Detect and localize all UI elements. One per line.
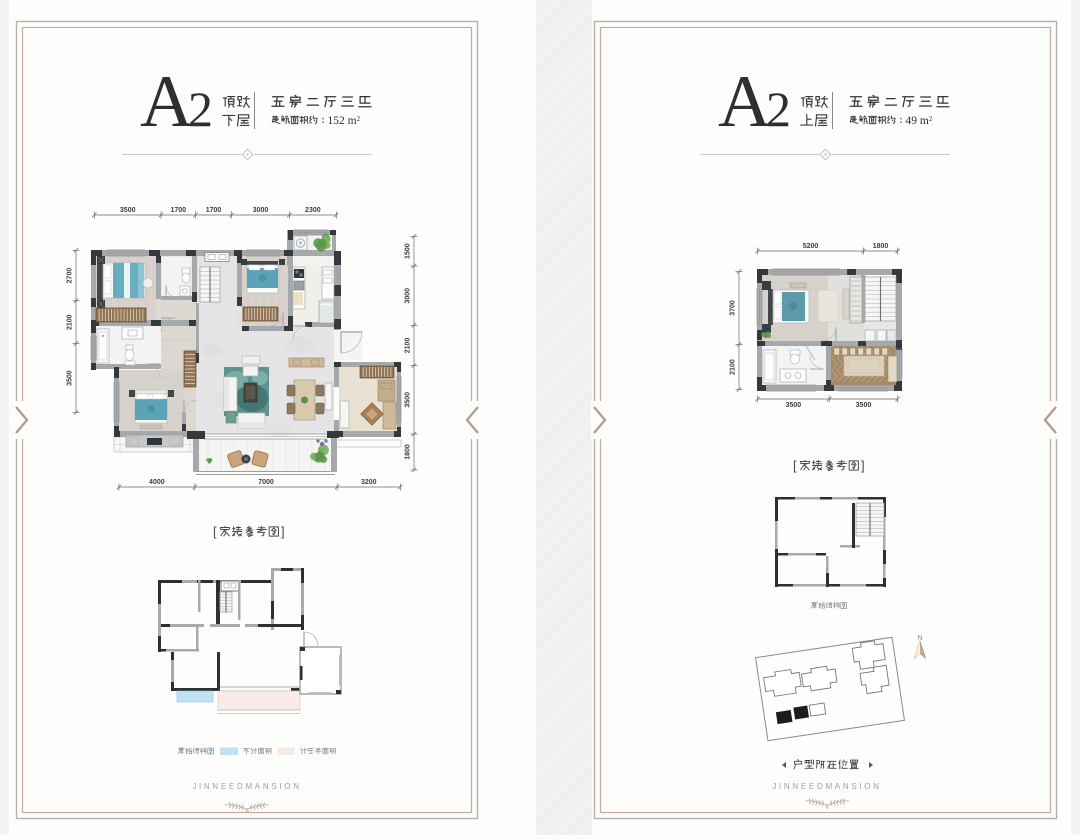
svg-text:2700: 2700 <box>67 268 74 284</box>
svg-text:JINNEEDMANSION: JINNEEDMANSION <box>772 782 881 791</box>
svg-text:3200: 3200 <box>361 479 377 486</box>
svg-text:3700: 3700 <box>730 300 737 316</box>
svg-text:]: ] <box>861 458 865 473</box>
svg-text:[: [ <box>213 524 217 539</box>
svg-text:N: N <box>918 635 923 642</box>
svg-text:2300: 2300 <box>305 207 321 214</box>
svg-text:3500: 3500 <box>405 392 412 408</box>
svg-text:2100: 2100 <box>67 314 74 330</box>
svg-text:3000: 3000 <box>253 207 269 214</box>
svg-text:5200: 5200 <box>803 243 819 250</box>
svg-text:3500: 3500 <box>786 402 802 409</box>
svg-text:A: A <box>718 61 771 143</box>
svg-text:2100: 2100 <box>730 359 737 375</box>
svg-text:2100: 2100 <box>405 338 412 354</box>
svg-text:1700: 1700 <box>170 207 186 214</box>
svg-text:1500: 1500 <box>405 243 412 259</box>
svg-text:3500: 3500 <box>856 402 872 409</box>
svg-text:4000: 4000 <box>149 479 165 486</box>
svg-text:2: 2 <box>188 81 213 137</box>
svg-text:1800: 1800 <box>405 444 412 460</box>
svg-text:3000: 3000 <box>405 288 412 304</box>
svg-text:3500: 3500 <box>67 370 74 386</box>
svg-text:2: 2 <box>766 81 791 137</box>
svg-text:3500: 3500 <box>120 207 136 214</box>
svg-text:1700: 1700 <box>206 207 222 214</box>
svg-text:152 m2: 152 m2 <box>328 115 361 127</box>
svg-text:1800: 1800 <box>873 243 889 250</box>
svg-text:49 m2: 49 m2 <box>906 115 933 127</box>
svg-text:A: A <box>140 61 193 143</box>
svg-text:]: ] <box>281 524 285 539</box>
svg-text:JINNEEDMANSION: JINNEEDMANSION <box>192 782 301 791</box>
svg-text:[: [ <box>793 458 797 473</box>
svg-text:7000: 7000 <box>258 479 274 486</box>
